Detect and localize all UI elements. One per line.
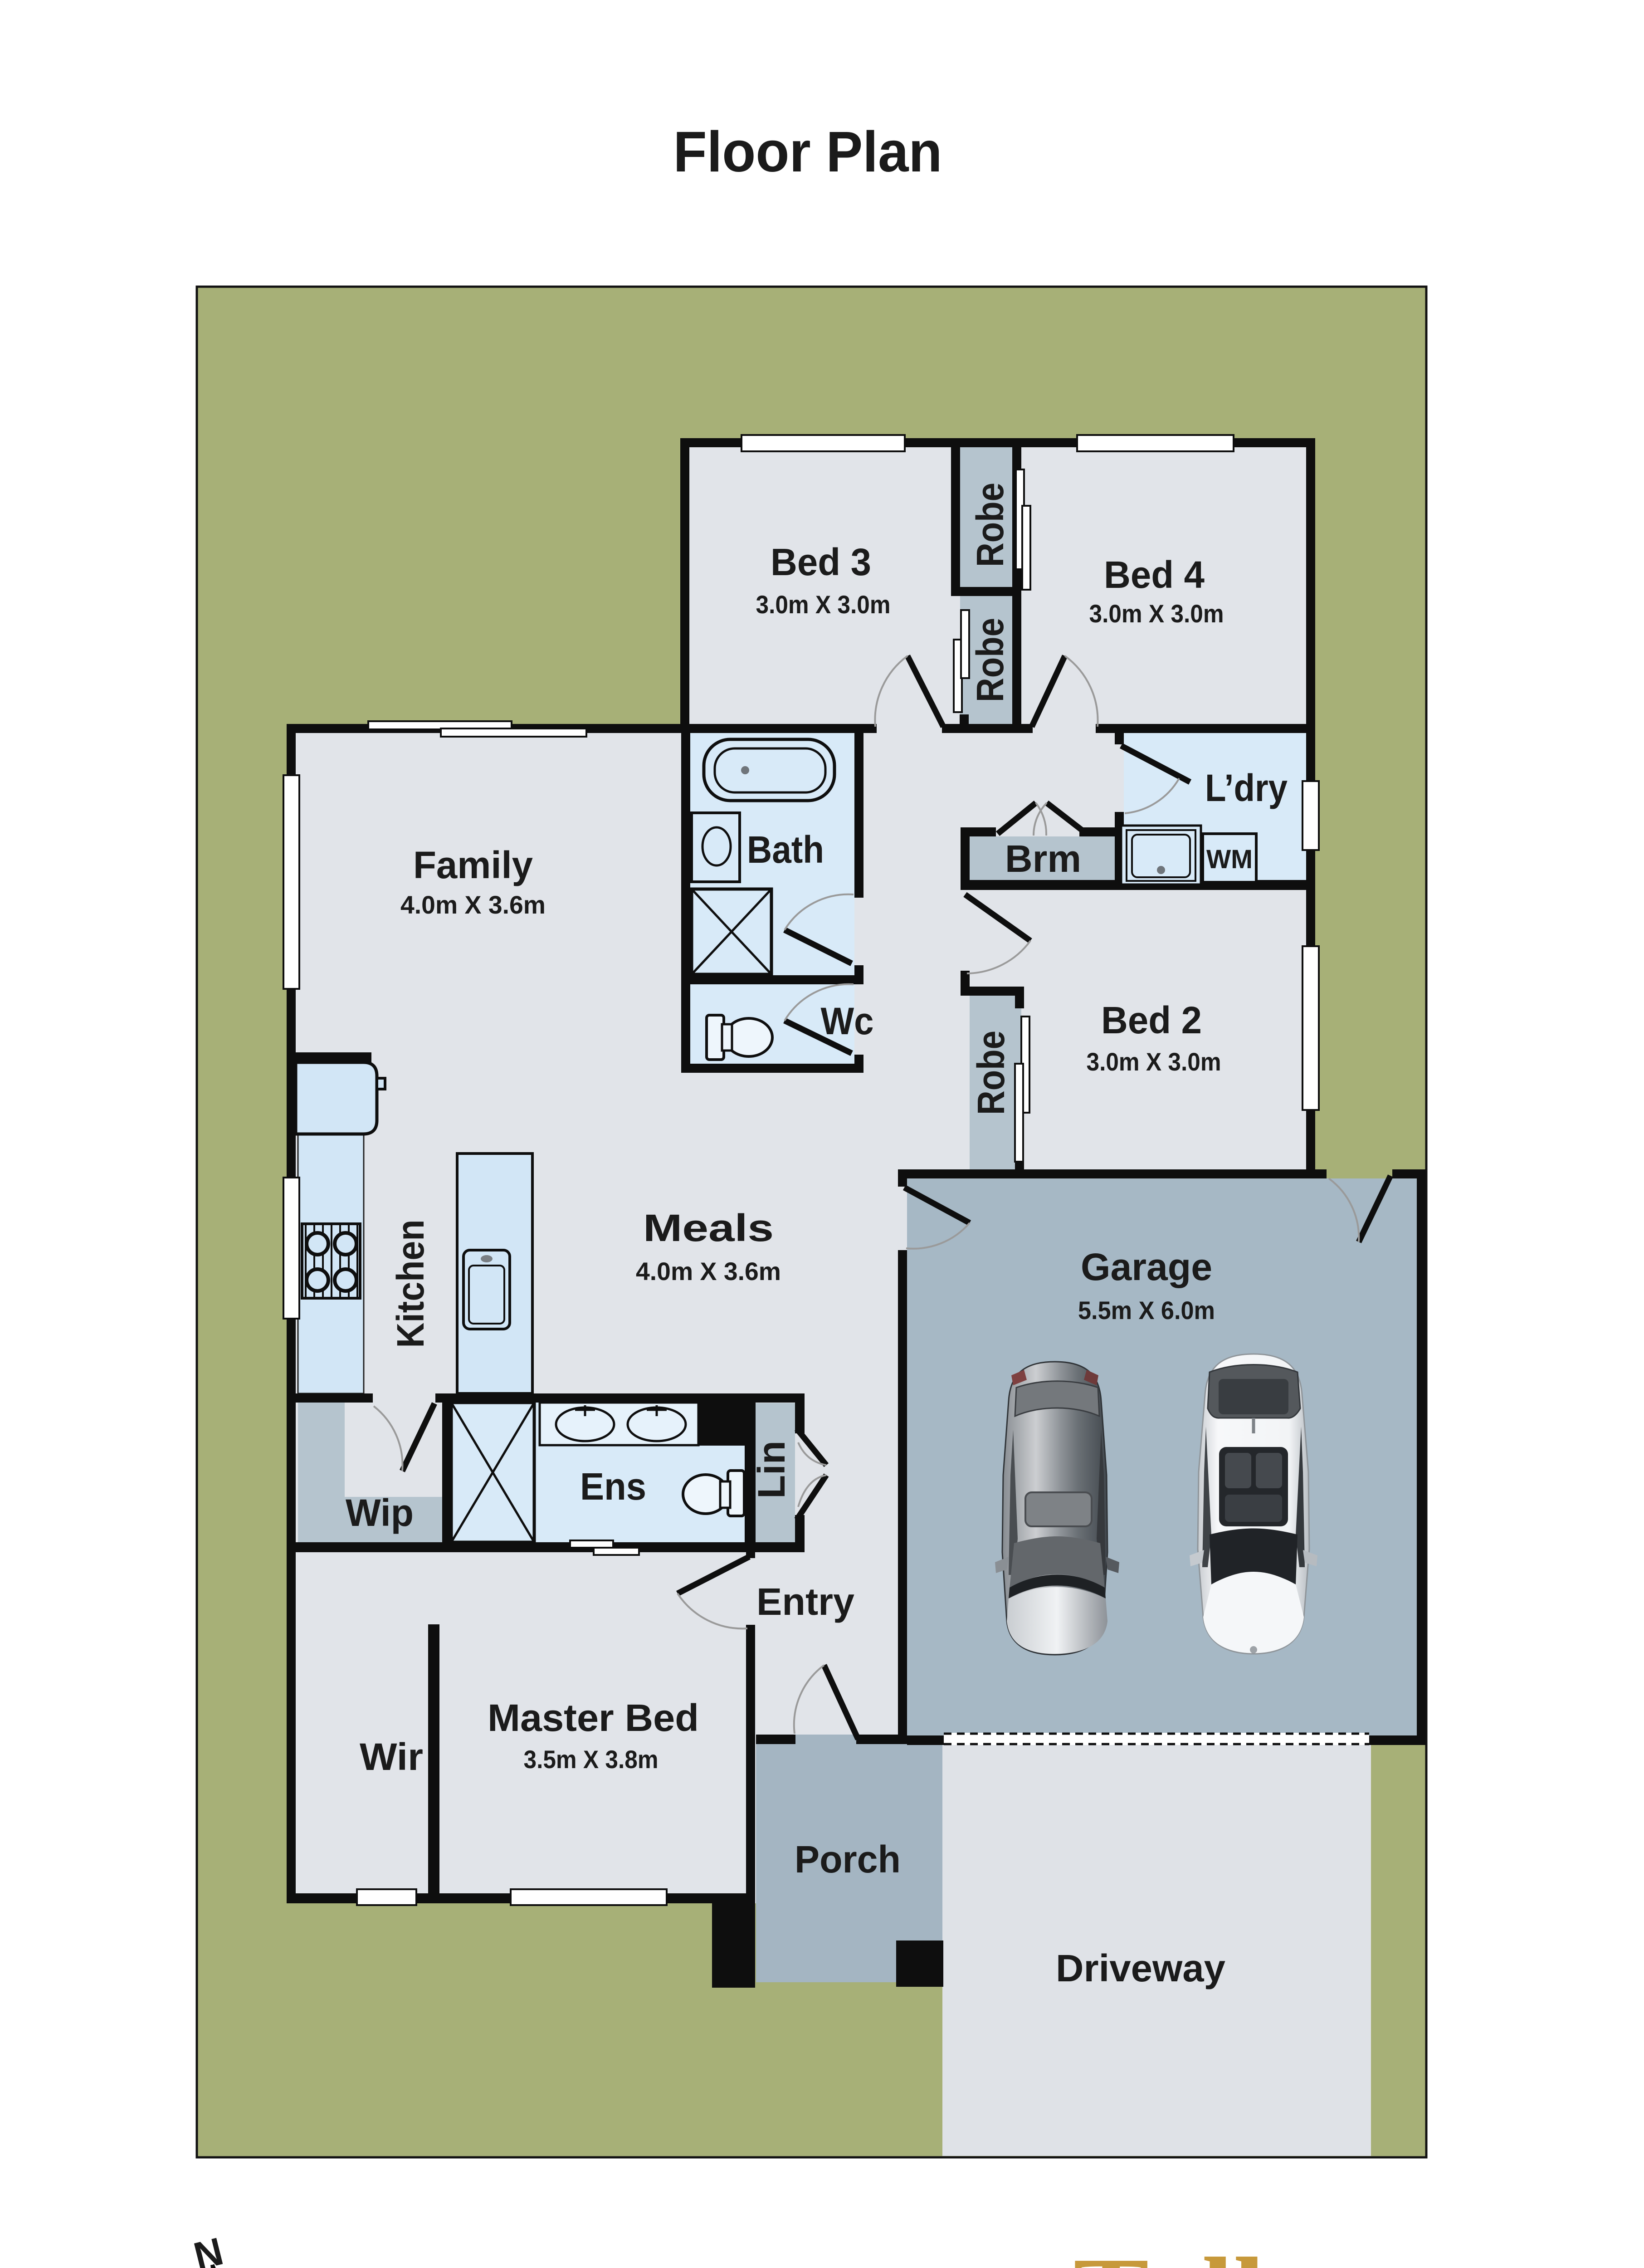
svg-text:Meals: Meals — [643, 1207, 774, 1249]
svg-text:Driveway: Driveway — [1056, 1947, 1225, 1989]
svg-text:3.0m X 3.0m: 3.0m X 3.0m — [1089, 599, 1224, 628]
svg-text:Bed 3: Bed 3 — [771, 541, 871, 583]
svg-text:3.0m X 3.0m: 3.0m X 3.0m — [756, 590, 891, 619]
svg-text:Kitchen: Kitchen — [389, 1220, 432, 1348]
svg-text:Family: Family — [413, 844, 533, 886]
svg-text:L’dry: L’dry — [1205, 767, 1288, 809]
svg-text:WM: WM — [1206, 845, 1253, 874]
svg-text:4.0m X 3.6m: 4.0m X 3.6m — [400, 890, 546, 919]
svg-text:Floor Plan: Floor Plan — [673, 120, 942, 184]
svg-text:Lin: Lin — [750, 1441, 793, 1499]
svg-text:Wc: Wc — [821, 1000, 874, 1042]
svg-text:Brm: Brm — [1005, 837, 1081, 880]
svg-text:Garage: Garage — [1081, 1246, 1212, 1288]
svg-text:4.0m X 3.6m: 4.0m X 3.6m — [636, 1257, 781, 1286]
svg-text:Master Bed: Master Bed — [488, 1696, 699, 1739]
svg-text:Porch: Porch — [795, 1838, 901, 1881]
svg-text:Wir: Wir — [360, 1735, 423, 1778]
svg-text:3.5m X 3.8m: 3.5m X 3.8m — [524, 1745, 659, 1774]
svg-text:Bath: Bath — [747, 828, 824, 871]
svg-text:Ens: Ens — [580, 1465, 646, 1508]
svg-text:Bed 4: Bed 4 — [1104, 553, 1205, 596]
svg-text:Robe: Robe — [969, 483, 1011, 567]
svg-text:Robe: Robe — [970, 1031, 1012, 1115]
svg-text:3.0m X 3.0m: 3.0m X 3.0m — [1087, 1047, 1221, 1076]
svg-text:Tullum: Tullum — [1073, 2236, 1423, 2268]
svg-text:Robe: Robe — [969, 618, 1011, 702]
svg-text:Wip: Wip — [346, 1491, 414, 1534]
svg-text:5.5m X 6.0m: 5.5m X 6.0m — [1078, 1296, 1215, 1325]
svg-text:Entry: Entry — [756, 1580, 854, 1623]
svg-text:Bed 2: Bed 2 — [1101, 999, 1202, 1041]
